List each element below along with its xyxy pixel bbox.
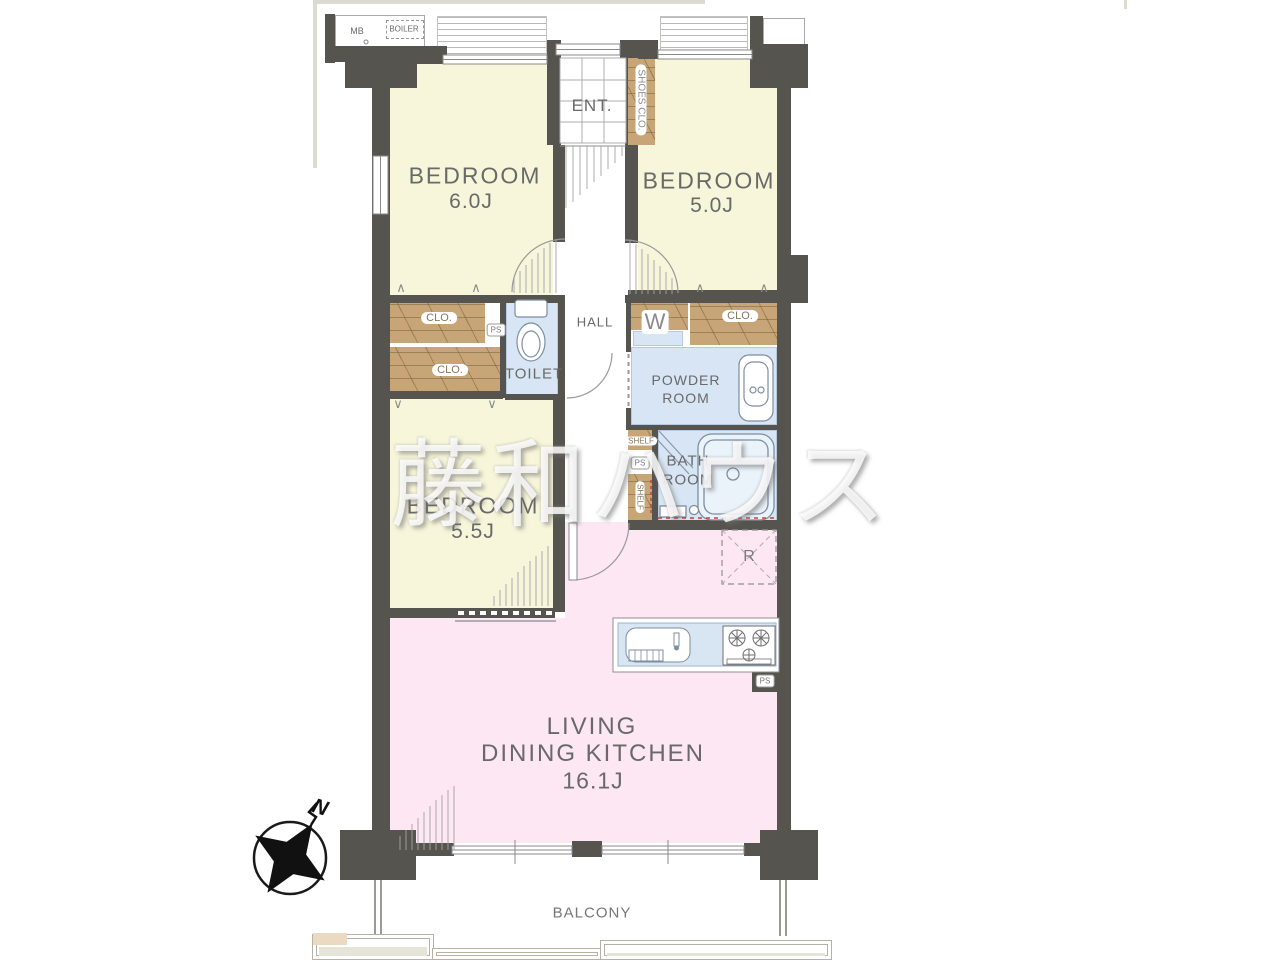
ldk-size: 16.1J	[562, 768, 623, 795]
ldk-label-1: LIVING	[547, 713, 638, 741]
washer-label: W	[642, 310, 669, 334]
ps-shaft-label-1: PS	[487, 324, 506, 337]
powder-room-label-1: POWDER	[652, 372, 721, 388]
refrigerator-label: R	[743, 548, 755, 566]
closet-chevron: ∧	[396, 280, 406, 296]
hall-label: HALL	[577, 315, 614, 330]
closet-c-label: CLO.	[722, 310, 758, 322]
meter-dot	[364, 40, 368, 44]
toilet-label: TOILET	[505, 366, 563, 383]
ps-shaft-label-3: PS	[756, 675, 775, 688]
entrance-label: ENT.	[572, 96, 613, 116]
watermark-text: 藤和ハウス	[390, 408, 890, 547]
ldk-label-2: DINING KITCHEN	[481, 740, 705, 768]
bedroom-b-size: 5.0J	[690, 194, 734, 218]
closet-chevron: ∧	[695, 280, 705, 296]
meter-box-label: MB	[350, 26, 364, 36]
balcony-edge-chip	[313, 933, 347, 945]
floor-plan: ∧ ∧ ∧ ∧ ∨ ∨ MB BOILER ENT. SHOES CLO. BE…	[0, 0, 1280, 960]
kitchen-counter	[613, 618, 779, 672]
powder-room-label-2: ROOM	[662, 390, 710, 406]
boiler-label: BOILER	[389, 25, 418, 34]
closet-chevron: ∧	[471, 280, 481, 296]
balcony-label: BALCONY	[553, 905, 632, 922]
bedroom-b-name: BEDROOM	[643, 168, 776, 195]
toilet-fixture	[515, 300, 547, 361]
closet-chevron: ∧	[759, 280, 769, 296]
closet-a-label: CLO.	[421, 312, 457, 324]
bedroom-a-size: 6.0J	[449, 190, 493, 214]
shoes-closet-label: SHOES CLO.	[636, 64, 647, 135]
closet-b-label: CLO.	[432, 364, 468, 376]
bedroom-a-name: BEDROOM	[409, 163, 542, 190]
